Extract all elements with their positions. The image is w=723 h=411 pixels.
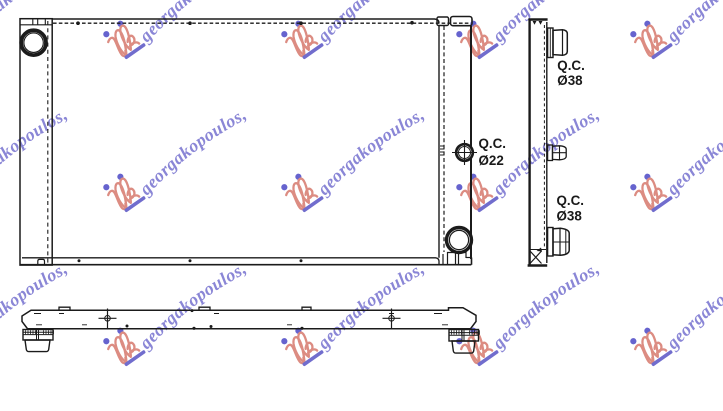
svg-text:Ø38: Ø38 xyxy=(557,73,583,88)
svg-text:Q.C.: Q.C. xyxy=(479,136,507,151)
svg-text:Q.C.: Q.C. xyxy=(557,193,585,208)
svg-text:Q.C.: Q.C. xyxy=(557,58,585,73)
svg-text:Ø38: Ø38 xyxy=(557,208,583,223)
svg-text:Ø22: Ø22 xyxy=(479,153,504,168)
